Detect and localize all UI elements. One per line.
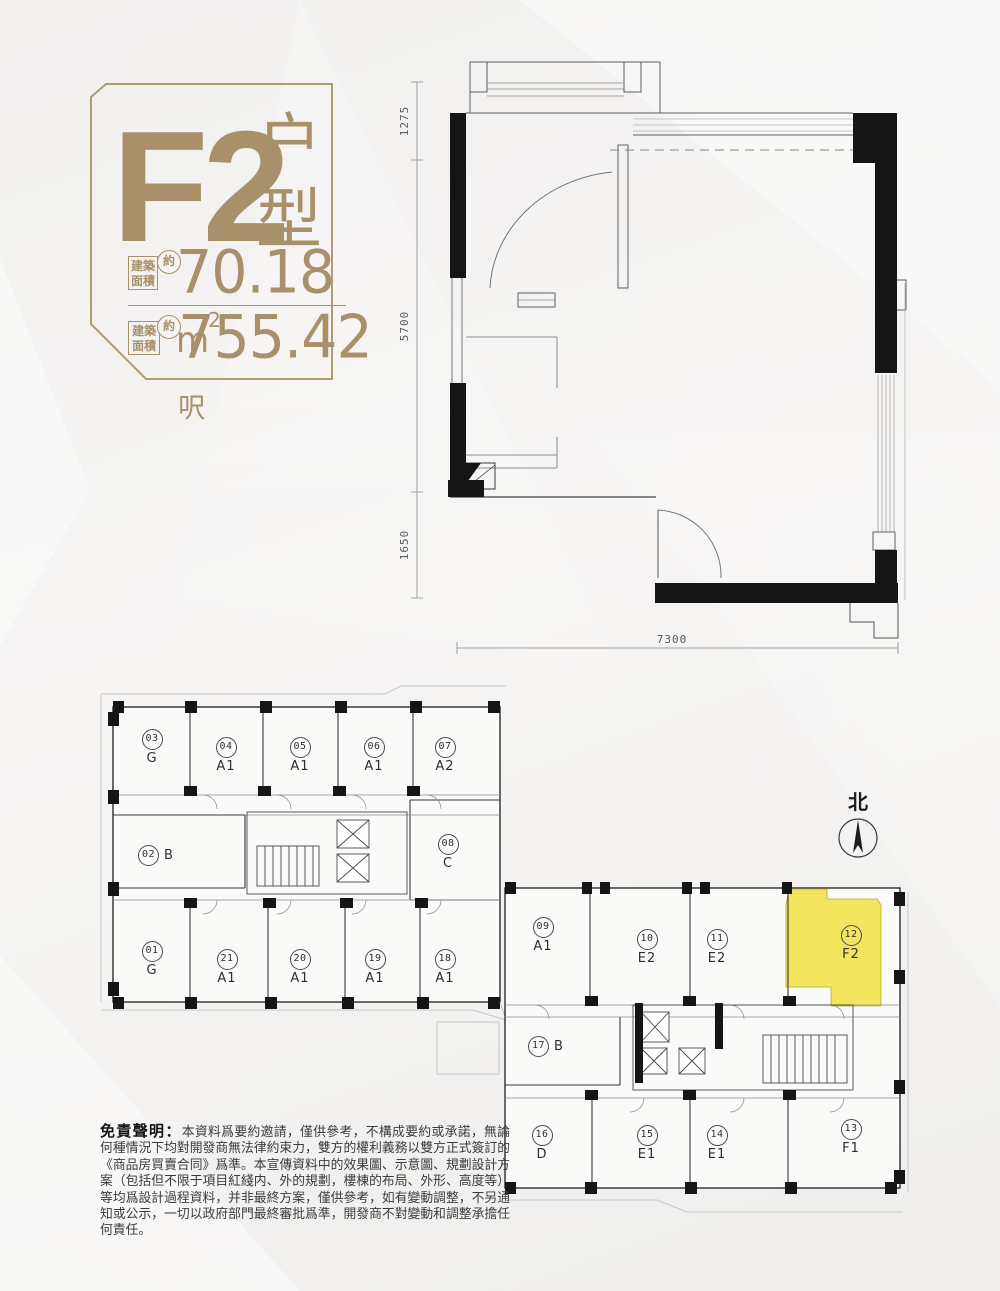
- unit-type: D: [536, 1147, 547, 1162]
- north-label: 北: [832, 786, 884, 815]
- unit-type: E1: [708, 1147, 727, 1162]
- unit-number: 11: [707, 929, 728, 950]
- unit-label-07: 07A2: [423, 737, 467, 774]
- unit-title-emblem: F2 户型 建築 面積 約 70.18 m2 建築 面積 約 755.42呎: [90, 83, 333, 380]
- unit-number: 08: [438, 834, 459, 855]
- unit-type: A1: [365, 971, 384, 986]
- area-sqft-value: 755.42呎: [178, 309, 375, 428]
- unit-label-15: 15E1: [625, 1125, 669, 1162]
- unit-label-21: 21A1: [205, 949, 249, 986]
- unit-label-20: 20A1: [278, 949, 322, 986]
- disclaimer-text: 免責聲明：本資料爲要約邀請，僅供參考，不構成要約或承諾，無論何種情況下均對開發商…: [100, 1124, 510, 1239]
- link-corridor: [437, 1002, 505, 1074]
- unit-label-09: 09A1: [521, 917, 565, 954]
- unit-type-label: 户型: [256, 107, 328, 256]
- unit-type: A1: [435, 971, 454, 986]
- area-label-box: 建築 面積 約: [128, 321, 160, 355]
- unit-number: 05: [290, 737, 311, 758]
- unit-type: B: [554, 1039, 564, 1054]
- dim-label-7300: 7300: [657, 633, 688, 646]
- unit-label-19: 19A1: [353, 949, 397, 986]
- unit-label-06: 06A1: [352, 737, 396, 774]
- area-row-sqft: 建築 面積 約 755.42呎: [128, 311, 375, 425]
- unit-number: 19: [365, 949, 386, 970]
- unit-label-16: 16D: [520, 1125, 564, 1162]
- unit-number: 06: [364, 737, 385, 758]
- unit-label-13: 13F1: [829, 1119, 873, 1156]
- unit-number: 09: [533, 917, 554, 938]
- unit-number: 12: [841, 925, 862, 946]
- unit-number: 16: [532, 1125, 553, 1146]
- unit-type: F1: [842, 1141, 860, 1156]
- plan-light-outlines: [450, 62, 906, 638]
- dimension-lines: [411, 82, 898, 654]
- dim-label-1650: 1650: [400, 530, 411, 561]
- unit-number: 14: [707, 1125, 728, 1146]
- plan-walls: [448, 113, 898, 603]
- unit-number: 15: [637, 1125, 658, 1146]
- unit-number: 07: [435, 737, 456, 758]
- dim-label-1275: 1275: [400, 106, 411, 137]
- unit-number: 21: [217, 949, 238, 970]
- unit-type: E2: [708, 951, 727, 966]
- unit-label-10: 10E2: [625, 929, 669, 966]
- unit-type: F2: [842, 947, 860, 962]
- unit-label-11: 11E2: [695, 929, 739, 966]
- unit-label-18: 18A1: [423, 949, 467, 986]
- unit-type: C: [443, 856, 453, 871]
- main-floor-plan-drawing: 1275 5700 1650 7300: [400, 55, 920, 670]
- unit-type: A1: [290, 759, 309, 774]
- unit-type: A1: [216, 759, 235, 774]
- unit-type: A1: [217, 971, 236, 986]
- flyer-page: F2 户型 建築 面積 約 70.18 m2 建築 面積 約 755.42呎: [0, 0, 1000, 1291]
- unit-number: 02: [138, 845, 159, 866]
- unit-label-01: 01G: [130, 941, 174, 978]
- disclaimer-body: 本資料爲要約邀請，僅供參考，不構成要約或承諾，無論何種情況下均對開發商無法律約束…: [100, 1124, 510, 1237]
- unit-label-08: 08C: [426, 834, 470, 871]
- unit-label-05: 05A1: [278, 737, 322, 774]
- unit-type: B: [164, 848, 174, 863]
- unit-type: A1: [364, 759, 383, 774]
- unit-label-03: 03G: [130, 729, 174, 766]
- unit-number: 17: [528, 1036, 549, 1057]
- unit-number: 03: [142, 729, 163, 750]
- unit-number: 13: [841, 1119, 862, 1140]
- compass-icon: [837, 817, 879, 859]
- unit-type: A1: [290, 971, 309, 986]
- unit-number: 04: [216, 737, 237, 758]
- unit-number: 01: [142, 941, 163, 962]
- unit-type: A1: [533, 939, 552, 954]
- unit-number: 18: [435, 949, 456, 970]
- unit-number: 20: [290, 949, 311, 970]
- disclaimer-heading: 免責聲明：: [100, 1123, 182, 1140]
- unit-type: G: [146, 963, 157, 978]
- unit-label-12-highlighted[interactable]: 12F2: [829, 925, 873, 962]
- unit-type: E2: [638, 951, 657, 966]
- unit-label-04: 04A1: [204, 737, 248, 774]
- unit-type: A2: [435, 759, 454, 774]
- north-indicator: 北: [832, 786, 884, 859]
- unit-label-14: 14E1: [695, 1125, 739, 1162]
- unit-label-02: 02B: [138, 845, 174, 866]
- area-label-box: 建築 面積 約: [128, 256, 158, 290]
- dim-label-5700: 5700: [400, 311, 411, 342]
- unit-type: G: [146, 751, 157, 766]
- unit-type: E1: [638, 1147, 657, 1162]
- unit-number: 10: [637, 929, 658, 950]
- unit-label-17: 17B: [528, 1036, 564, 1057]
